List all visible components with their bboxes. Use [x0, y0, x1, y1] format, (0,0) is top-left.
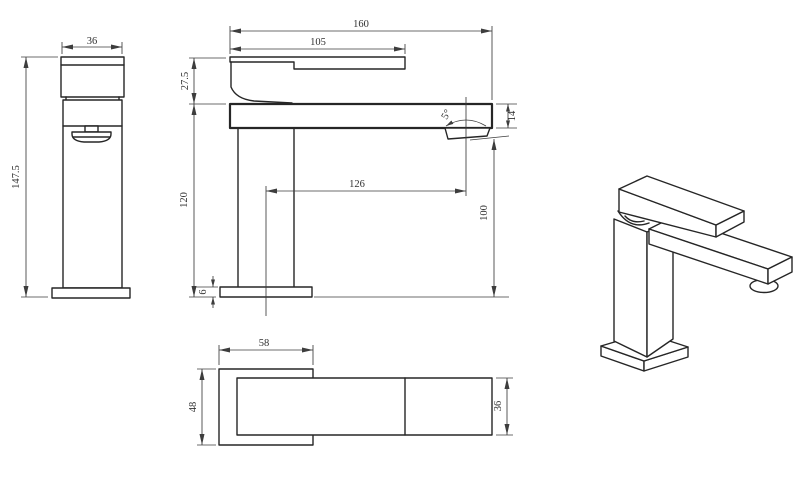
front-outlet-tab: [85, 126, 98, 132]
dim-base-thickness: 6: [198, 289, 209, 294]
dim-body-height: 120: [179, 192, 190, 208]
dim-base-width: 58: [259, 338, 270, 349]
plan-spout-bar: [237, 378, 492, 435]
dim-overall-length: 160: [353, 19, 369, 30]
dim-overall-height: 147.5: [11, 165, 22, 189]
side-spout-arm: [230, 104, 492, 128]
dim-outlet-height: 100: [479, 205, 490, 221]
dim-spout-thickness: 14: [507, 110, 518, 121]
technical-drawing-canvas: 36 147.5 160 105 27: [0, 0, 800, 478]
dim-front-width: 36: [87, 36, 98, 47]
dim-spout-width: 36: [493, 401, 504, 412]
dim-handle-length: 105: [310, 37, 326, 48]
plan-view: 58 48 36: [188, 338, 513, 445]
side-view: 160 105 27.5 120 6 126: [179, 19, 518, 316]
dim-spout-reach: 126: [349, 179, 365, 190]
side-handle-lever: [230, 57, 405, 69]
dim-base-depth: 48: [188, 402, 199, 413]
iso-column-front-left-face: [614, 219, 647, 357]
front-base-plate: [52, 288, 130, 298]
dim-upper-height: 27.5: [180, 72, 191, 90]
front-view: 36 147.5: [11, 36, 130, 298]
front-handle-block: [61, 57, 124, 97]
side-cartridge-dome: [231, 62, 292, 104]
side-aerator: [445, 128, 490, 139]
technical-drawing-page: 36 147.5 160 105 27: [0, 0, 800, 478]
iso-view: [601, 176, 792, 371]
